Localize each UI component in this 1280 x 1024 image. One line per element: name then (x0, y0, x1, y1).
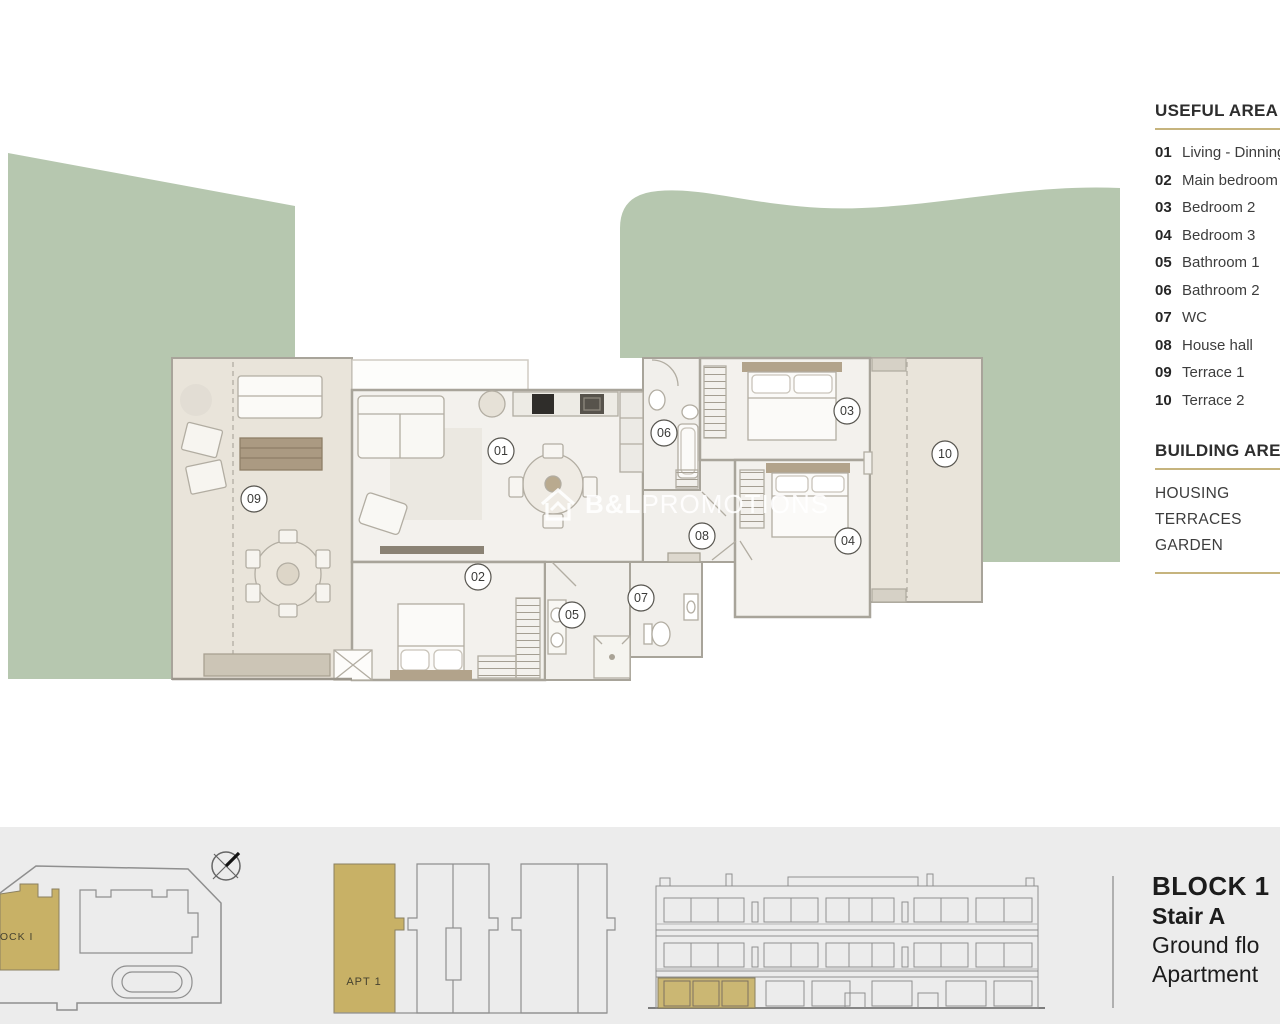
toilet (652, 622, 670, 646)
legend-item-num: 03 (1155, 194, 1175, 222)
entrance-step (668, 553, 700, 562)
gold-divider (1155, 128, 1280, 130)
room-label-07: 07 (628, 585, 654, 611)
sofa (358, 396, 444, 458)
legend-item-num: 09 (1155, 359, 1175, 387)
building-area-item: TERRACES (1155, 507, 1280, 533)
wardrobe (704, 366, 726, 438)
legend-item: 05Bathroom 1 (1155, 249, 1280, 277)
room-label-text: 04 (841, 534, 855, 548)
kitchen-cabinets (620, 392, 643, 472)
block-title: BLOCK 1 (1152, 870, 1280, 902)
legend-item-label: Terrace 2 (1182, 387, 1245, 415)
gold-divider (1155, 468, 1280, 470)
chair (246, 550, 260, 568)
legend-item: 10Terrace 2 (1155, 387, 1280, 415)
room-label-08: 08 (689, 523, 715, 549)
toilet-tank (644, 624, 652, 644)
pillow (434, 650, 462, 670)
room-label-03: 03 (834, 398, 860, 424)
wc-sink (684, 594, 698, 620)
room-label-text: 01 (494, 444, 508, 458)
watermark-brand-rest: PROMOTIONS (641, 489, 829, 519)
stove (532, 394, 554, 414)
chair (316, 550, 330, 568)
apt-1-label: APT 1 (346, 976, 381, 988)
building-area-item: GARDEN (1155, 533, 1280, 559)
room-label-10: 10 (932, 441, 958, 467)
terrace-2-room (870, 358, 982, 602)
building-area-legend: BUILDING AREA HOUSING TERRACES GARDEN (1155, 441, 1280, 574)
room-label-text: 09 (247, 492, 261, 506)
headboard (766, 463, 850, 473)
room-label-text: 02 (471, 570, 485, 584)
headboard (390, 670, 472, 680)
watermark-brand-bold: B&L (585, 489, 641, 519)
headboard (742, 362, 842, 372)
gold-divider (1155, 572, 1280, 574)
toilet (649, 390, 665, 410)
planter (204, 654, 330, 676)
legend-item-label: Bedroom 3 (1182, 222, 1255, 250)
legend-item-num: 05 (1155, 249, 1175, 277)
brand-house-icon (538, 484, 578, 524)
room-label-02: 02 (465, 564, 491, 590)
room-label-text: 06 (657, 426, 671, 440)
chair (509, 477, 523, 497)
legend-item-label: Terrace 1 (1182, 359, 1245, 387)
chair (246, 584, 260, 602)
legend-item-label: Bathroom 1 (1182, 249, 1260, 277)
site-block-highlight (0, 884, 59, 970)
outdoor-table (240, 438, 322, 470)
useful-area-items: 01Living - Dinning 02Main bedroom 03Bedr… (1155, 139, 1280, 414)
legend-item: 09Terrace 1 (1155, 359, 1280, 387)
legend-item-num: 06 (1155, 277, 1175, 305)
room-label-text: 07 (634, 591, 648, 605)
ground-floor-highlight (658, 978, 755, 1008)
legend-item-label: Bathroom 2 (1182, 277, 1260, 305)
legend-item-num: 10 (1155, 387, 1175, 415)
room-label-text: 10 (938, 447, 952, 461)
plant-circle (180, 384, 212, 416)
legend-item: 07WC (1155, 304, 1280, 332)
legend-item-num: 02 (1155, 167, 1175, 195)
block-floor: Ground flo (1152, 931, 1280, 960)
legend-item-label: Living - Dinning (1182, 139, 1280, 167)
legend-item-label: House hall (1182, 332, 1253, 360)
sink (682, 405, 698, 419)
room-label-09: 09 (241, 486, 267, 512)
pillow (401, 650, 429, 670)
legend-item-label: Main bedroom (1182, 167, 1278, 195)
chair (543, 444, 563, 458)
ac-unit (872, 358, 906, 371)
apt-1-highlight (334, 864, 404, 1013)
legend-item-num: 01 (1155, 139, 1175, 167)
building-area-items: HOUSING TERRACES GARDEN (1155, 481, 1280, 559)
legend-item: 08House hall (1155, 332, 1280, 360)
legend-item: 06Bathroom 2 (1155, 277, 1280, 305)
page: { "colors": { "garden_green": "#b6c7af",… (0, 0, 1280, 1024)
room-label-01: 01 (488, 438, 514, 464)
watermark: B&LPROMOTIONS (538, 484, 829, 524)
room-label-text: 08 (695, 529, 709, 543)
wardrobe (516, 598, 540, 678)
legend-item-label: WC (1182, 304, 1207, 332)
room-label-text: 05 (565, 608, 579, 622)
room-label-06: 06 (651, 420, 677, 446)
pillow (794, 375, 832, 393)
chair (279, 604, 297, 617)
watermark-text: B&LPROMOTIONS (585, 489, 829, 520)
building-area-item: HOUSING (1155, 481, 1280, 507)
wardrobe (478, 656, 516, 678)
chair (316, 584, 330, 602)
block-apartment: Apartment (1152, 960, 1280, 989)
legend-item: 02Main bedroom (1155, 167, 1280, 195)
footer-strip (0, 827, 1280, 1024)
tv-console (380, 546, 484, 554)
legend-item-num: 04 (1155, 222, 1175, 250)
ac-unit (872, 589, 906, 602)
useful-area-legend: USEFUL AREA 01Living - Dinning 02Main be… (1155, 101, 1280, 414)
sink (551, 633, 563, 647)
building-area-title: BUILDING AREA (1155, 441, 1280, 461)
bedroom-2-furniture (704, 362, 842, 440)
chair (279, 530, 297, 543)
kitchen-island (479, 391, 505, 417)
room-label-04: 04 (835, 528, 861, 554)
legend-item: 01Living - Dinning (1155, 139, 1280, 167)
outdoor-sofa (238, 376, 322, 418)
wall-step (864, 452, 872, 474)
block-stair: Stair A (1152, 902, 1280, 931)
legend-item-num: 07 (1155, 304, 1175, 332)
useful-area-title: USEFUL AREA (1155, 101, 1280, 121)
room-label-text: 03 (840, 404, 854, 418)
pillow (752, 375, 790, 393)
legend-item-label: Bedroom 2 (1182, 194, 1255, 222)
legend-item: 03Bedroom 2 (1155, 194, 1280, 222)
legend-item-num: 08 (1155, 332, 1175, 360)
room-label-05: 05 (559, 602, 585, 628)
block-info: BLOCK 1 Stair A Ground flo Apartment (1152, 870, 1280, 989)
legend-item: 04Bedroom 3 (1155, 222, 1280, 250)
site-block-label: BLOCK I (0, 931, 33, 943)
pergola-strip (352, 360, 528, 390)
